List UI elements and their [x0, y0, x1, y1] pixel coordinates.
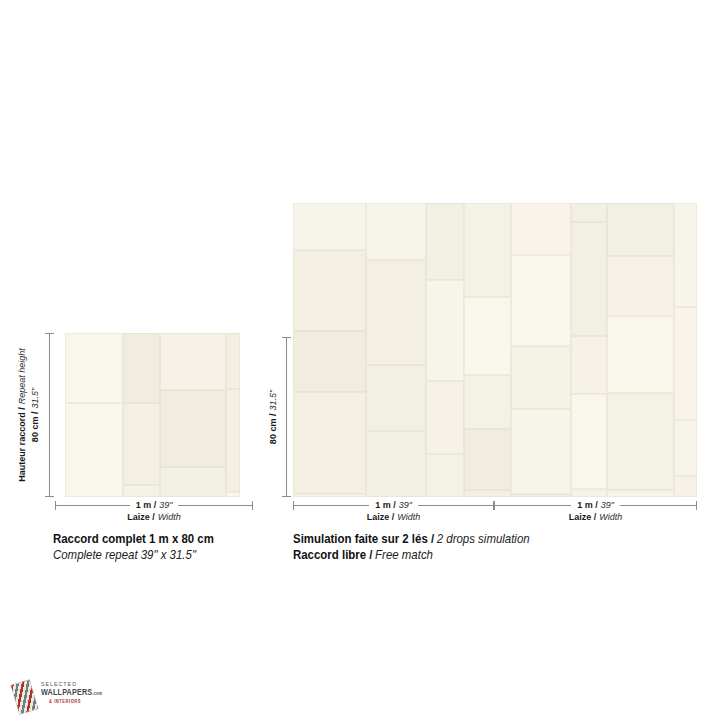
texture-patch — [674, 420, 697, 476]
texture-patch — [426, 381, 464, 454]
logo-text: SELECTED WALLPAPERS.com & INTERIORS — [41, 681, 113, 705]
width-label-en: Width — [397, 512, 420, 522]
texture-patch — [607, 203, 673, 256]
texture-patch — [464, 297, 511, 376]
width-label-fr: Laize / — [569, 512, 597, 522]
width-value-line: 1 m /39" — [293, 499, 494, 511]
texture-patch — [674, 203, 697, 307]
caption-free-match-en: Free match — [375, 547, 433, 562]
texture-patch — [607, 393, 673, 490]
left-width-dimension: 1 m /39" Laize /Width — [55, 499, 253, 525]
caption-simulation-en: 2 drops simulation — [437, 531, 530, 546]
height-label-fr: Hauteur raccord / — [17, 407, 27, 482]
texture-patch — [571, 203, 607, 222]
width-value-imperial: 39" — [399, 500, 412, 510]
width-label-line: Laize /Width — [494, 512, 697, 522]
texture-patch — [293, 250, 366, 332]
width-label-fr: Laize / — [127, 512, 155, 522]
wallpaper-dimension-sheet: Hauteur raccord /Repeat height 80 cm /31… — [0, 0, 720, 720]
texture-patch — [123, 485, 161, 497]
right-height-label: 80 cm /31.5" — [267, 372, 279, 462]
texture-patch — [366, 431, 426, 497]
caption-line-simulation: Simulation faite sur 2 lés /2 drops simu… — [293, 531, 530, 547]
texture-patch — [607, 256, 673, 315]
width-value-imperial: 39" — [159, 500, 172, 510]
caption-line-match: Raccord libre /Free match — [293, 547, 530, 563]
texture-patch — [464, 490, 511, 497]
right-drop1-width-dimension: 1 m /39" Laize /Width — [293, 499, 494, 525]
left-height-dimension-cap-top — [45, 333, 54, 334]
caption-line-en: Complete repeat 39" x 31.5" — [53, 547, 214, 563]
width-value-line: 1 m /39" — [55, 499, 253, 511]
height-value-metric: 80 cm / — [30, 412, 40, 443]
texture-patch — [366, 260, 426, 365]
right-caption: Simulation faite sur 2 lés /2 drops simu… — [293, 531, 530, 562]
texture-patch — [160, 390, 225, 467]
caption-complete-repeat-en: Complete repeat 39" x 31.5" — [53, 547, 196, 562]
texture-patch — [464, 203, 511, 297]
logo-interiors-label: & INTERIORS — [49, 699, 106, 705]
texture-patch — [160, 467, 225, 497]
texture-patch — [65, 333, 123, 403]
caption-simulation-fr: Simulation faite sur 2 lés / — [293, 531, 434, 546]
texture-patch — [511, 203, 572, 255]
texture-patch — [571, 222, 607, 337]
left-height-dimension-cap-bottom — [45, 496, 54, 497]
texture-patch — [160, 333, 225, 390]
caption-free-match-fr: Raccord libre / — [293, 547, 372, 562]
right-height-dimension-cap-bottom — [282, 496, 291, 497]
height-value-imperial: 31.5" — [268, 390, 278, 411]
texture-patch — [123, 333, 161, 403]
two-drops-swatch — [293, 203, 697, 497]
width-value-imperial: 39" — [601, 500, 614, 510]
texture-patch — [293, 392, 366, 494]
logo-wallpapers-label: WALLPAPERS.com — [41, 687, 102, 699]
texture-patch — [293, 203, 366, 250]
texture-patch — [464, 375, 511, 429]
wallpaper-roll-stack-icon — [11, 680, 38, 714]
caption-line-fr: Raccord complet 1 m x 80 cm — [53, 531, 214, 547]
height-label-line: Hauteur raccord /Repeat height — [16, 335, 29, 495]
texture-patch — [366, 203, 426, 260]
width-label-en: Width — [158, 512, 181, 522]
texture-patch — [571, 336, 607, 394]
caption-complete-repeat-fr: Raccord complet 1 m x 80 cm — [53, 531, 214, 546]
texture-patch — [674, 307, 697, 420]
width-label-en: Width — [599, 512, 622, 522]
height-label-en: Repeat height — [17, 348, 27, 404]
left-height-label: Hauteur raccord /Repeat height 80 cm /31… — [16, 335, 42, 495]
texture-patch — [607, 316, 673, 393]
left-height-dimension-line — [49, 333, 50, 497]
right-height-dimension-line — [286, 337, 287, 497]
texture-patch — [226, 389, 240, 493]
texture-patch — [426, 454, 464, 497]
width-value-metric: 1 m / — [136, 500, 157, 510]
right-height-dimension-cap-top — [282, 337, 291, 338]
width-label-line: Laize /Width — [55, 512, 253, 522]
single-repeat-swatch — [65, 333, 240, 497]
texture-patch — [511, 255, 572, 346]
texture-patch — [571, 394, 607, 489]
texture-patch — [123, 403, 161, 486]
texture-patch — [607, 490, 673, 497]
height-value-imperial: 31.5" — [30, 388, 40, 409]
width-label-fr: Laize / — [367, 512, 395, 522]
width-value-metric: 1 m / — [375, 500, 396, 510]
texture-patch — [293, 494, 366, 497]
texture-patch — [571, 489, 607, 497]
texture-patch — [226, 492, 240, 497]
texture-patch — [65, 403, 123, 497]
selectedwallpapers-logo: SELECTED WALLPAPERS.com & INTERIORS — [12, 679, 122, 719]
height-value-metric: 80 cm / — [268, 414, 278, 445]
width-label-line: Laize /Width — [293, 512, 494, 522]
texture-patch — [511, 494, 572, 497]
texture-patch — [511, 346, 572, 409]
left-caption: Raccord complet 1 m x 80 cm Complete rep… — [53, 531, 214, 562]
texture-patch — [426, 280, 464, 381]
logo-com-suffix: .com — [92, 691, 102, 696]
texture-patch — [426, 203, 464, 280]
logo-wallpapers-word: WALLPAPERS — [41, 687, 92, 697]
texture-patch — [511, 409, 572, 494]
texture-patch — [674, 476, 697, 497]
width-value-metric: 1 m / — [577, 500, 598, 510]
texture-patch — [293, 331, 366, 392]
texture-patch — [464, 429, 511, 490]
texture-patch — [226, 333, 240, 389]
height-value-line: 80 cm /31.5" — [29, 335, 42, 495]
right-drop2-width-dimension: 1 m /39" Laize /Width — [494, 499, 697, 525]
texture-patch — [366, 365, 426, 431]
width-value-line: 1 m /39" — [494, 499, 697, 511]
